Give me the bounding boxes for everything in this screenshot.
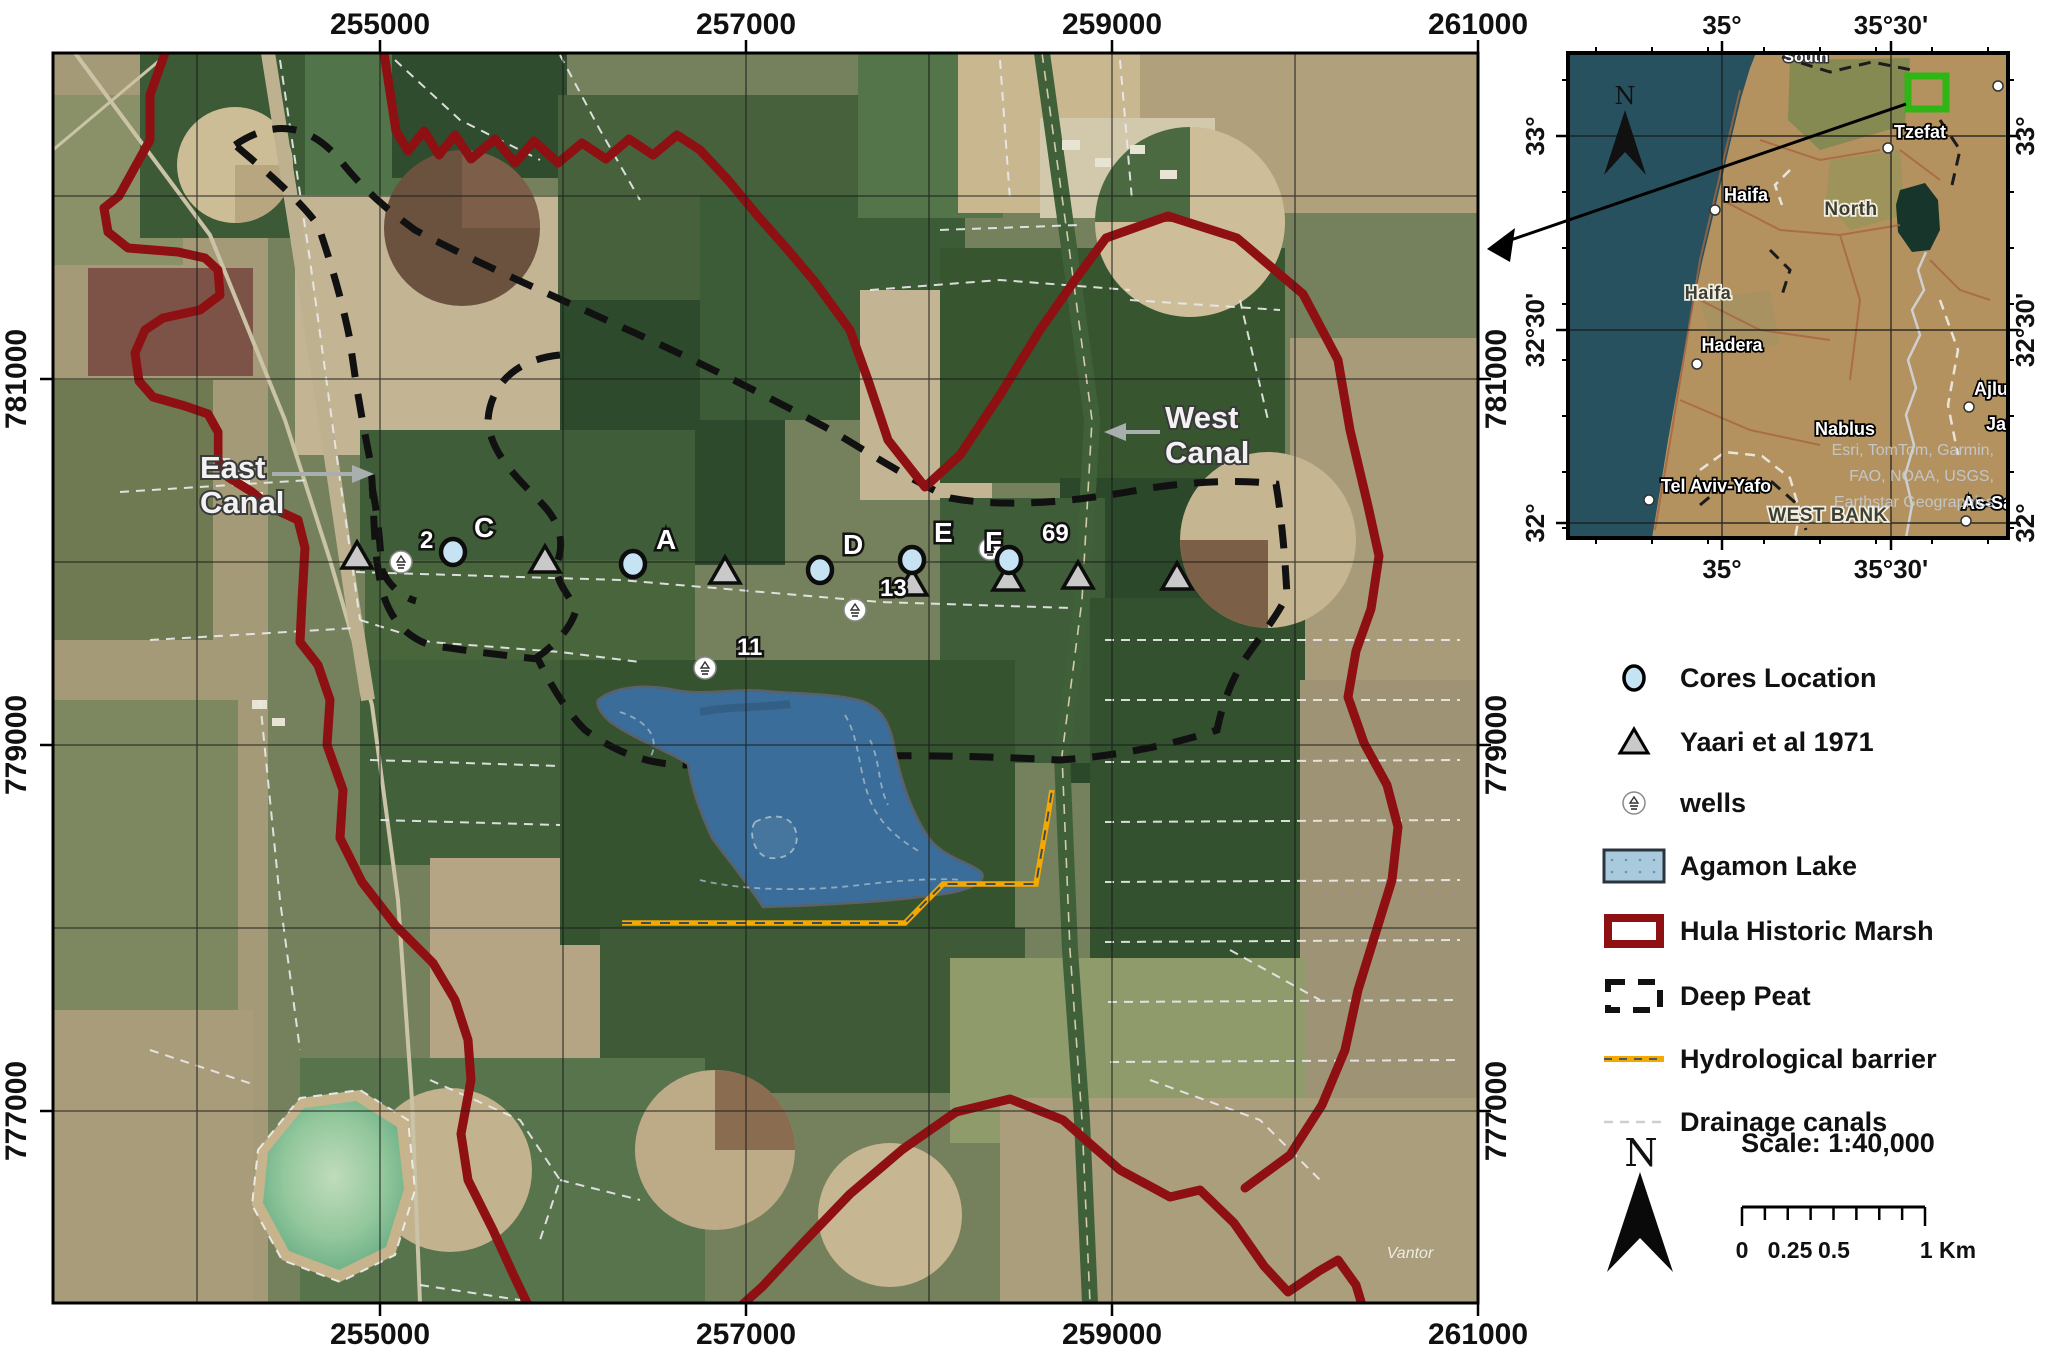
core-label: A	[656, 524, 676, 555]
legend-lake-dot	[1611, 859, 1614, 862]
core-marker	[900, 547, 924, 573]
city-label: Tel Aviv-Yafo	[1661, 476, 1771, 496]
legend-label: Cores Location	[1680, 663, 1877, 693]
svg-text:West: West	[1165, 400, 1239, 435]
attribution-text: Earthstar Geographics	[1834, 494, 1994, 511]
city-dot	[1961, 516, 1971, 526]
svg-text:Canal: Canal	[1165, 435, 1249, 470]
x-axis-label-bottom: 259000	[1062, 1318, 1162, 1351]
city-dot	[1644, 495, 1654, 505]
y-axis-label-left: 779000	[0, 695, 33, 795]
well-label: 69	[1042, 520, 1069, 547]
scalebar-label: 0	[1736, 1237, 1749, 1263]
north-arrow: N	[1607, 1131, 1673, 1272]
core-label: C	[474, 512, 494, 543]
x-axis-label-top: 257000	[696, 8, 796, 41]
legend-lake-dot	[1639, 871, 1642, 874]
scalebar-label: 0.5	[1818, 1237, 1850, 1263]
city-label: Haifa	[1724, 185, 1769, 205]
inset-y-label-right: 32°30'	[2010, 293, 2040, 367]
legend-lake-dot	[1625, 859, 1628, 862]
inset-y-label-right: 32°	[2010, 503, 2040, 542]
city-dot	[1692, 359, 1702, 369]
city-dot	[1710, 205, 1720, 215]
inset-x-label-top: 35°30'	[1854, 10, 1928, 40]
y-axis-label-right: 777000	[1480, 1061, 1513, 1161]
inset-x-label-bottom: 35°30'	[1854, 554, 1928, 584]
map-canvas: Vantor East Canal West Canal CADEF213116…	[0, 0, 2067, 1364]
x-axis-label-bottom: 257000	[696, 1318, 796, 1351]
inset-y-label-left: 32°	[1520, 503, 1550, 542]
y-axis-label-right: 781000	[1480, 329, 1513, 429]
svg-text:N: N	[1615, 82, 1636, 110]
city-label: Hadera	[1701, 335, 1763, 355]
main-map-satellite: Vantor East Canal West Canal CADEF213116…	[53, 53, 1478, 1305]
x-axis-label-top: 259000	[1062, 8, 1162, 41]
inset-y-label-left: 33°	[1520, 116, 1550, 155]
legend-item-peat: Deep Peat	[1608, 981, 1811, 1011]
inset-map: N South TzefatHaifaHaderaTel Aviv-YafoNa…	[1568, 49, 2044, 538]
attribution-text: FAO, NOAA, USGS,	[1849, 468, 1994, 485]
legend-item-core: Cores Location	[1624, 663, 1877, 693]
legend-item-marsh: Hula Historic Marsh	[1608, 916, 1934, 946]
legend-item-well: wells	[1623, 788, 1746, 818]
city-label: Nablus	[1815, 419, 1875, 439]
scalebar-label: 0.25	[1768, 1237, 1813, 1263]
legend-item-barrier: Hydrological barrier	[1604, 1044, 1937, 1074]
imagery-watermark: Vantor	[1387, 1245, 1434, 1262]
svg-text:Canal: Canal	[200, 485, 284, 520]
attribution-text: Esri, TomTom, Garmin,	[1832, 442, 1994, 459]
city-dot	[1964, 402, 1974, 412]
scale-title: Scale: 1:40,000	[1741, 1128, 1935, 1158]
legend-label: wells	[1679, 788, 1746, 818]
core-label: D	[843, 529, 863, 560]
city-label: Jarash	[1986, 414, 2044, 434]
svg-text:East: East	[200, 450, 265, 485]
city-dot	[1993, 81, 2003, 91]
core-label: F	[985, 526, 1002, 557]
legend-lake-dot	[1611, 871, 1614, 874]
legend-lake-swatch	[1604, 850, 1664, 882]
core-marker	[808, 557, 832, 583]
legend-lake-dot	[1625, 871, 1628, 874]
x-axis-label-top: 255000	[330, 8, 430, 41]
y-axis-label-right: 779000	[1480, 695, 1513, 795]
legend-lake-dot	[1653, 859, 1656, 862]
legend-marsh-swatch	[1608, 918, 1660, 944]
legend-triangle-icon	[1620, 729, 1648, 753]
inset-y-label-left: 32°30'	[1520, 293, 1550, 367]
legend-label: Hydrological barrier	[1680, 1044, 1937, 1074]
scalebar-label: 1 Km	[1920, 1237, 1976, 1263]
scale-bar: Scale: 1:40,000 00.250.51 Km	[1736, 1128, 1977, 1263]
legend-peat-swatch	[1608, 982, 1660, 1010]
figure-root: Vantor East Canal West Canal CADEF213116…	[0, 0, 2067, 1364]
legend-label: Deep Peat	[1680, 981, 1811, 1011]
legend: Cores LocationYaari et al 1971wellsAgamo…	[1604, 663, 1937, 1137]
y-axis-label-left: 781000	[0, 329, 33, 429]
x-axis-label-bottom: 255000	[330, 1318, 430, 1351]
inset-y-label-right: 33°	[2010, 116, 2040, 155]
well-label: 11	[737, 634, 762, 661]
legend-core-icon	[1624, 666, 1644, 690]
west-canal-label: West Canal	[1165, 400, 1249, 470]
city-dot	[1883, 143, 1893, 153]
legend-label: Hula Historic Marsh	[1680, 916, 1934, 946]
inset-x-label-bottom: 35°	[1702, 554, 1741, 584]
y-axis-label-left: 777000	[0, 1061, 33, 1161]
well-label: 2	[420, 527, 433, 554]
legend-lake-dot	[1653, 871, 1656, 874]
legend-item-lake: Agamon Lake	[1604, 850, 1857, 882]
legend-label: Yaari et al 1971	[1680, 727, 1874, 757]
inset-x-label-top: 35°	[1702, 10, 1741, 40]
region-label: North	[1824, 199, 1877, 220]
region-label: Haifa	[1685, 283, 1732, 303]
svg-text:N: N	[1624, 1131, 1657, 1175]
city-label: Tzefat	[1894, 122, 1946, 142]
legend-item-triangle: Yaari et al 1971	[1620, 727, 1874, 757]
core-marker	[621, 551, 645, 577]
core-marker	[441, 539, 465, 565]
city-label: Ajlun	[1974, 379, 2019, 399]
well-label: 13	[880, 575, 907, 602]
core-label: E	[934, 517, 953, 548]
x-axis-label-bottom: 261000	[1428, 1318, 1528, 1351]
x-axis-label-top: 261000	[1428, 8, 1528, 41]
legend-label: Agamon Lake	[1680, 851, 1857, 881]
legend-lake-dot	[1639, 859, 1642, 862]
